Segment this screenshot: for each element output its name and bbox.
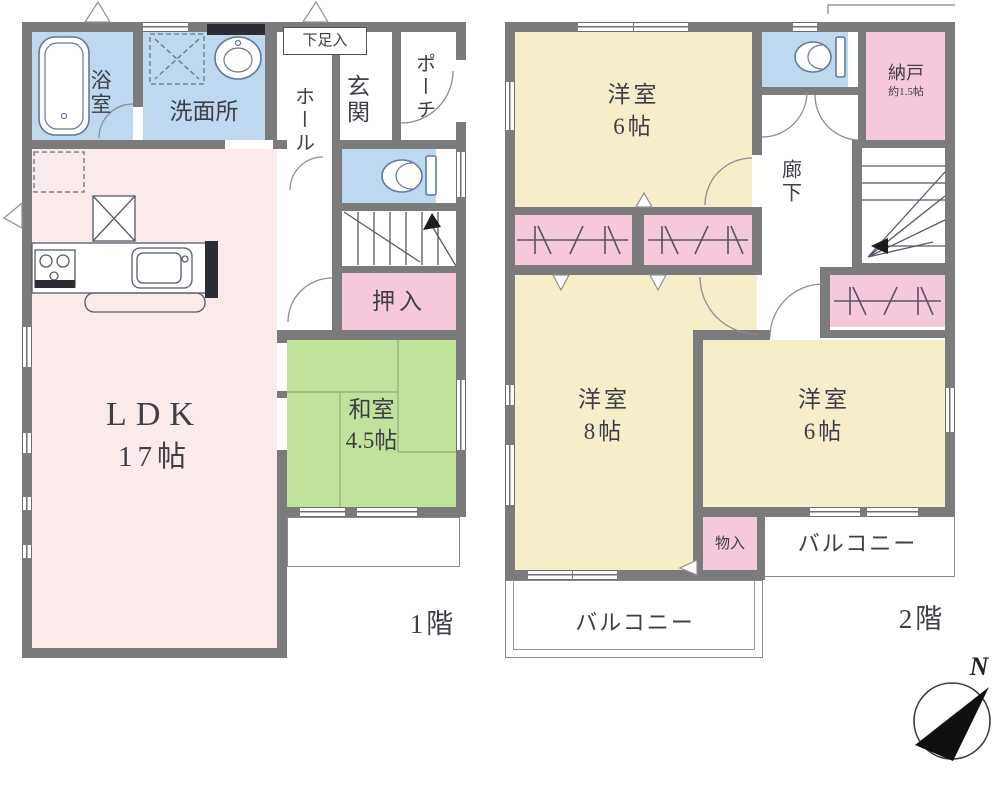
entrance-label: 玄関 [338, 50, 374, 150]
sliding-door-opening [277, 398, 287, 450]
window [22, 497, 32, 510]
bedroom-nw-size: 6帖 [613, 111, 654, 142]
bath-label: 浴室 [84, 45, 116, 140]
ldk-size: 17帖 [118, 438, 191, 477]
floor2-label: 2階 [883, 600, 961, 638]
bedroom-w-label: 洋室 8帖 [515, 368, 693, 463]
wall [505, 22, 955, 32]
window [22, 433, 32, 453]
wall [332, 266, 466, 273]
bath-room [32, 32, 133, 140]
eave-line [828, 5, 955, 14]
compass-icon [914, 683, 990, 761]
bedroom-e-label: 洋室 6帖 [703, 368, 945, 463]
bedroom-e-name: 洋室 [798, 384, 850, 415]
window [867, 507, 918, 517]
porch-door-opening [456, 60, 466, 122]
bedroom-w-size: 8帖 [584, 416, 625, 447]
japanese-room-label: 和室 4.5帖 [287, 386, 456, 464]
toilet-room-2f [762, 30, 848, 87]
floor-plan: 浴室 洗面所 下足入 ホール 玄関 ポーチ 押入 和室 4.5帖 LDK 17帖… [0, 0, 1000, 791]
wall [693, 330, 703, 580]
storeroom-size: 約1.5帖 [888, 85, 924, 100]
corridor-label: 廊下 [772, 142, 806, 222]
door-opening [225, 140, 273, 149]
wall [757, 517, 765, 570]
compass-north-label: N [962, 650, 996, 684]
wall [332, 203, 466, 211]
window [528, 570, 572, 580]
staircase-1f [344, 212, 456, 266]
terrace-outline [287, 517, 460, 567]
balcony-south-label: バルコニー [513, 600, 757, 645]
wall [693, 330, 770, 340]
closet-nw-left [513, 215, 632, 265]
window [505, 385, 515, 405]
window [143, 22, 188, 32]
storage-monoiri-label: 物入 [703, 522, 757, 567]
hall-label: ホール [285, 66, 319, 174]
wall [392, 22, 401, 149]
window [456, 152, 466, 197]
storeroom-label: 納戸 約1.5帖 [862, 48, 950, 113]
window [573, 570, 617, 580]
ldk-name: LDK [106, 392, 203, 438]
closet-e [830, 275, 945, 327]
bedroom-w-name: 洋室 [578, 384, 630, 415]
wall [752, 207, 762, 275]
wall [820, 330, 955, 338]
window [945, 388, 955, 432]
window [22, 545, 32, 558]
wall [22, 648, 287, 658]
window [810, 507, 860, 517]
window [634, 22, 688, 32]
wall [820, 267, 955, 275]
wall [632, 207, 644, 275]
window [456, 380, 466, 450]
sliding-door-opening [277, 343, 287, 391]
oshiire-label: 押入 [342, 273, 456, 330]
porch-label: ポーチ [405, 32, 441, 142]
window [22, 327, 32, 367]
japanese-room-size: 4.5帖 [346, 425, 398, 456]
wall [852, 148, 862, 263]
storeroom-name: 納戸 [888, 61, 924, 85]
wall [133, 22, 143, 107]
wall [752, 87, 858, 95]
window [357, 507, 417, 517]
japanese-room-name: 和室 [349, 394, 395, 425]
toilet-room-1f [342, 149, 436, 203]
wall [265, 22, 277, 149]
washroom-label: 洗面所 [145, 95, 263, 129]
window [793, 22, 817, 32]
balcony-east-label: バルコニー [765, 524, 950, 564]
window [505, 82, 515, 130]
ldk-label: LDK 17帖 [32, 385, 277, 485]
wall [820, 267, 830, 338]
staircase-2f [862, 166, 945, 257]
wall [332, 149, 342, 338]
bedroom-nw-label: 洋室 6帖 [515, 68, 752, 153]
wall [277, 330, 466, 340]
closet-nw-right [644, 215, 752, 265]
bedroom-nw-name: 洋室 [608, 79, 660, 110]
wall [852, 140, 955, 148]
window [505, 445, 515, 505]
window [578, 22, 633, 32]
wall [277, 507, 287, 658]
bedroom-w-notch [693, 275, 757, 330]
bedroom-e-size: 6帖 [804, 416, 845, 447]
window [300, 507, 345, 517]
floor1-label: 1階 [396, 605, 470, 643]
